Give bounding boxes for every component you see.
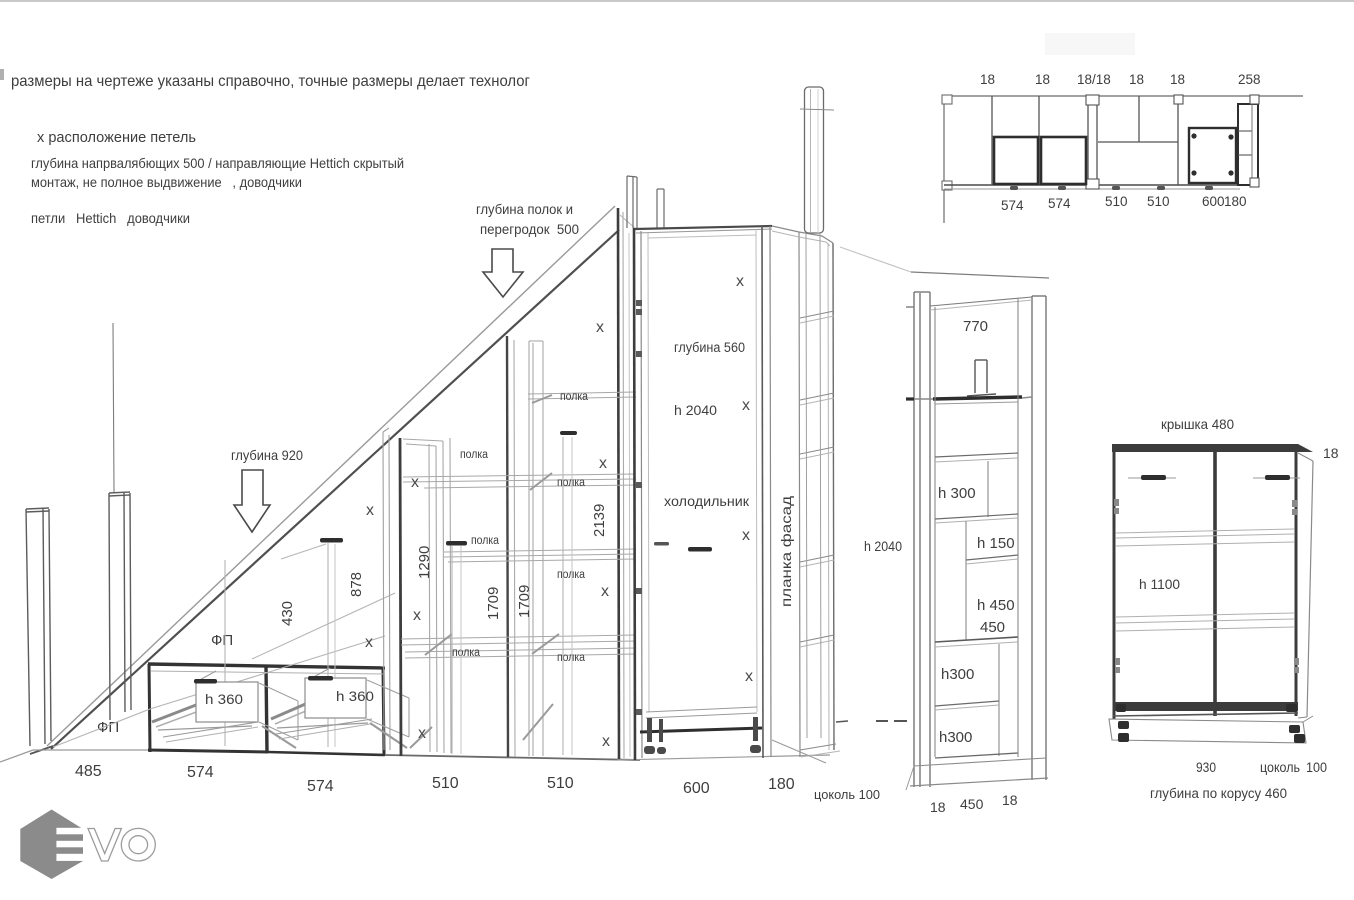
svg-text:h 1100: h 1100 <box>1139 576 1180 592</box>
svg-text:574: 574 <box>307 778 334 795</box>
svg-text:574: 574 <box>1048 196 1071 211</box>
svg-text:x: x <box>418 725 426 742</box>
svg-text:574: 574 <box>187 764 214 781</box>
svg-text:h300: h300 <box>941 666 974 683</box>
svg-text:h300: h300 <box>939 729 972 746</box>
svg-text:18: 18 <box>1170 72 1185 87</box>
svg-text:полка: полка <box>557 569 586 581</box>
svg-text:h 2040: h 2040 <box>864 539 902 554</box>
svg-text:h 360: h 360 <box>336 688 374 704</box>
svg-text:цоколь: цоколь <box>1260 760 1300 775</box>
svg-text:x: x <box>745 668 753 685</box>
svg-text:x: x <box>601 583 609 600</box>
svg-text:глубина 560: глубина 560 <box>674 340 745 355</box>
svg-text:18: 18 <box>1323 445 1339 461</box>
svg-text:h 2040: h 2040 <box>674 402 717 418</box>
svg-text:600: 600 <box>1202 194 1225 209</box>
svg-text:510: 510 <box>1147 194 1170 209</box>
svg-text:х расположение петель: х расположение петель <box>37 129 196 146</box>
svg-text:h 150: h 150 <box>977 535 1015 552</box>
svg-text:x: x <box>742 527 750 544</box>
svg-text:глубина полок и: глубина полок и <box>476 201 573 217</box>
svg-text:x: x <box>599 455 607 472</box>
svg-text:x: x <box>736 273 744 290</box>
svg-text:полка: полка <box>471 535 500 547</box>
svg-text:планка фасад: планка фасад <box>778 496 794 607</box>
svg-text:полка: полка <box>560 391 589 403</box>
svg-text:крышка 480: крышка 480 <box>1161 416 1234 432</box>
svg-text:18: 18 <box>1002 792 1018 808</box>
svg-text:18: 18 <box>1129 72 1144 87</box>
svg-text:цоколь 100: цоколь 100 <box>814 787 880 802</box>
svg-text:полка: полка <box>460 449 489 461</box>
svg-text:петли Hettich доводчики: петли Hettich доводчики <box>31 210 190 226</box>
svg-text:полка: полка <box>557 477 586 489</box>
svg-text:глубина напрвалябющих 500 / на: глубина напрвалябющих 500 / направляющие… <box>31 155 404 171</box>
svg-text:600: 600 <box>683 780 710 797</box>
svg-text:h 450: h 450 <box>977 597 1015 614</box>
svg-text:x: x <box>602 733 610 750</box>
svg-text:2139: 2139 <box>591 504 608 537</box>
svg-text:x: x <box>596 319 604 336</box>
svg-text:18/18: 18/18 <box>1077 72 1111 87</box>
svg-text:глубина по корусу 460: глубина по корусу 460 <box>1150 786 1287 801</box>
svg-text:полка: полка <box>557 652 586 664</box>
svg-text:770: 770 <box>963 318 988 335</box>
svg-text:18: 18 <box>930 799 946 815</box>
svg-text:18: 18 <box>1035 72 1050 87</box>
svg-text:ФП: ФП <box>211 632 233 649</box>
svg-text:100: 100 <box>1306 760 1327 775</box>
svg-text:258: 258 <box>1238 72 1261 87</box>
svg-text:h 300: h 300 <box>938 485 976 502</box>
svg-text:полка: полка <box>452 647 481 659</box>
svg-text:x: x <box>366 502 374 519</box>
svg-text:холодильник: холодильник <box>664 494 749 509</box>
svg-text:18: 18 <box>980 72 995 87</box>
svg-text:1290: 1290 <box>416 546 433 579</box>
svg-text:x: x <box>413 607 421 624</box>
svg-text:450: 450 <box>980 619 1005 636</box>
svg-text:930: 930 <box>1196 760 1216 775</box>
svg-text:430: 430 <box>279 601 296 626</box>
svg-text:x: x <box>411 474 419 491</box>
svg-text:574: 574 <box>1001 198 1024 213</box>
svg-text:ФП: ФП <box>97 719 119 736</box>
svg-text:1709: 1709 <box>516 585 533 618</box>
svg-text:1709: 1709 <box>485 587 502 620</box>
svg-text:180: 180 <box>768 776 795 793</box>
svg-text:глубина 920: глубина 920 <box>231 447 303 463</box>
svg-text:485: 485 <box>75 763 102 780</box>
svg-text:180: 180 <box>1224 194 1247 209</box>
svg-text:510: 510 <box>1105 194 1128 209</box>
svg-text:перегродок 500: перегродок 500 <box>480 221 579 237</box>
svg-text:510: 510 <box>432 775 459 792</box>
svg-text:монтаж, не полное выдвижение: монтаж, не полное выдвижение , доводчики <box>31 174 302 190</box>
svg-text:510: 510 <box>547 775 574 792</box>
svg-text:878: 878 <box>348 572 365 597</box>
svg-text:x: x <box>742 397 750 414</box>
svg-text:x: x <box>365 634 373 651</box>
svg-text:размеры на чертеже указаны спр: размеры на чертеже указаны справочно, то… <box>11 73 530 90</box>
svg-text:450: 450 <box>960 796 984 812</box>
svg-text:h 360: h 360 <box>205 691 243 707</box>
